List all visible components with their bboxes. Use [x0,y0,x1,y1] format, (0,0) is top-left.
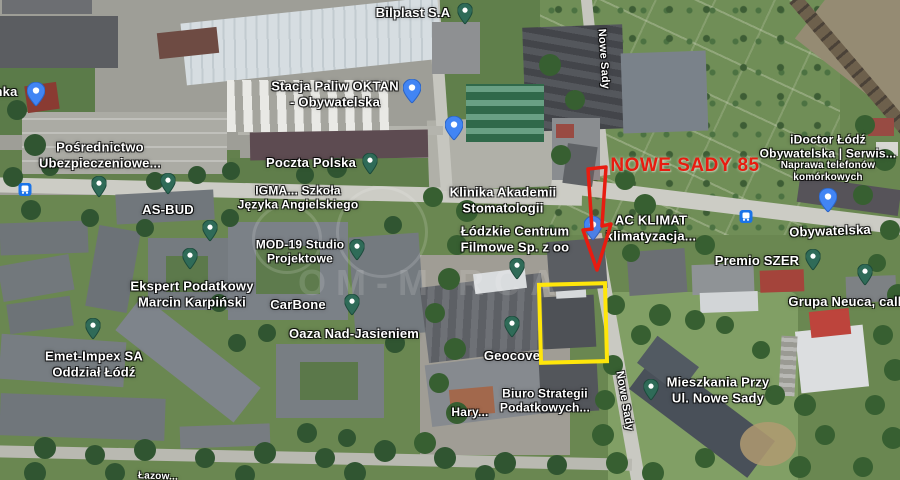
label-oaza[interactable]: Oaza Nad-Jasieniem [289,326,419,342]
building [809,308,851,338]
label-line: Naprawa telefonów [781,160,876,172]
place-icon [648,384,653,389]
label-stacja-paliw-oktan[interactable]: Stacja Paliw OKTAN- Obywatelska [271,78,399,109]
label-line: Ekspert Podatkowy [130,278,253,294]
filmowe-pin[interactable] [510,258,525,284]
place-icon [349,299,354,304]
mail-icon [367,158,372,163]
label-line: IGMA... Szkoła [238,184,359,198]
building [0,16,118,68]
bus-icon [743,213,750,219]
label-line: - Obywatelska [271,94,399,110]
label-as-bud[interactable]: AS-BUD [142,202,194,218]
building [760,269,805,293]
place-icon [96,181,101,186]
label-line: komórkowych [781,172,876,184]
label-line: AC KLIMAT [606,212,696,228]
premio-pin[interactable] [806,249,821,275]
bed-icon [451,121,457,127]
label-line: Stomatologii [450,200,557,216]
label-line: Marcin Karpiński [130,294,253,310]
place-icon [187,253,192,258]
place-icon [207,225,212,230]
label-line: Klinika Akademii [450,184,557,200]
label-line: Ul. Nowe Sady [667,390,770,406]
nka-poi-pin[interactable] [27,82,45,111]
label-ac-klimat[interactable]: AC KLIMATklimatyzacja... [606,212,696,243]
label-klinika[interactable]: Klinika AkademiiStomatologii [450,184,557,215]
label-line: Ubezpieczeniowe... [39,155,161,171]
label-poczta-polska[interactable]: Poczta Polska [266,155,356,171]
factory-icon [462,8,467,13]
place-icon [862,269,867,274]
building [621,51,709,134]
label-line: nka [0,84,18,100]
label-line: Hary... [451,405,488,419]
label-line: klimatyzacja... [606,228,696,244]
geocove-pin[interactable] [505,316,520,342]
annotation-nowe-sady-85: NOWE SADY 85 [610,155,759,177]
label-emet-impex[interactable]: Emet-Impex SAOddział Łódź [45,348,143,379]
satellite-terrain [0,0,900,480]
label-line: Geocove [484,348,540,364]
as-bud-pin[interactable] [161,173,176,199]
label-posrednictwo[interactable]: PośrednictwoUbezpieczeniowe... [39,139,161,170]
poczta-polska-pin[interactable] [363,153,378,179]
label-idoctor-sub[interactable]: Naprawa telefonówkomórkowych [781,160,876,184]
shopping-bag-icon [825,193,831,199]
label-line: Obywatelska [789,222,871,240]
label-geocove[interactable]: Geocove [484,348,540,364]
label-line: AS-BUD [142,202,194,218]
mieszkania-pin[interactable] [644,379,659,405]
label-line: Mieszkania Przy [667,374,770,390]
ekspert-pin[interactable] [183,248,198,274]
building [432,22,480,74]
label-line: Stacja Paliw OKTAN [271,78,399,94]
label-line: Łazow... [138,470,179,480]
label-line: Pośrednictwo [39,139,161,155]
place-icon [90,323,95,328]
building [627,248,688,296]
label-biuro-strategii[interactable]: Biuro StrategiiPodatkowych... [500,387,590,416]
building [556,124,574,138]
highlight-box [537,281,609,365]
label-line: CarBone [270,297,326,313]
label-line: Bilplast S.A [376,5,451,21]
label-obywatelska-street: Obywatelska [789,222,871,240]
label-lazow-partial: Łazow... [138,470,179,480]
mod-19-pin[interactable] [350,239,365,265]
label-line: Emet-Impex SA [45,348,143,364]
building [0,220,89,255]
tree-cluster [0,0,10,10]
hotel-pin[interactable] [445,116,463,145]
label-carbone[interactable]: CarBone [270,297,326,313]
place-icon [514,263,519,268]
label-ekspert-podatkowy[interactable]: Ekspert PodatkowyMarcin Karpiński [130,278,253,309]
place-icon [509,321,514,326]
label-grupa-neuca[interactable]: Grupa Neuca, call [788,294,900,310]
label-line: Oaza Nad-Jasieniem [289,326,419,342]
label-line: Grupa Neuca, call [788,294,900,310]
place-icon [165,178,170,183]
label-line: iDoctor Łódź [760,133,897,147]
label-line: Oddział Łódź [45,364,143,380]
label-line: MOD-19 Studio [256,238,345,252]
label-line: Filmowe Sp. z oo [461,239,570,255]
label-line: Języka Angielskiego [238,198,359,212]
label-line: Projektowe [256,252,345,266]
red-arrow-annotation [578,164,618,276]
bilplast-pin[interactable] [458,3,473,29]
neuca-pin[interactable] [858,264,873,290]
label-idoctor-name[interactable]: iDoctor ŁódźObywatelska | Serwis... [760,133,897,162]
building [700,291,759,313]
label-mod-19[interactable]: MOD-19 StudioProjektowe [256,238,345,267]
label-igma-szkola[interactable]: IGMA... SzkołaJęzyka Angielskiego [238,184,359,213]
fuel-icon [409,84,415,90]
building [180,423,271,448]
bus-stop-obywatelska-pin[interactable] [740,210,753,228]
building [740,422,796,466]
map-canvas[interactable]: OM-M RCA Bilplast S.AStacja Paliw OKTAN-… [0,0,900,480]
carbone-pin[interactable] [345,294,360,320]
place-icon [810,254,815,259]
building [0,393,166,441]
building [300,362,358,400]
emet-impex-pin[interactable] [86,318,101,344]
label-nka-partial[interactable]: nka [0,84,18,100]
place-icon [354,244,359,249]
label-line: Poczta Polska [266,155,356,171]
label-line: Podatkowych... [500,401,590,415]
fuel-station-pin[interactable] [403,79,421,108]
igma-pin[interactable] [203,220,218,246]
label-line: Łódzkie Centrum [461,223,570,239]
road-west-pin[interactable] [92,176,107,202]
building [0,254,75,302]
building [778,336,797,397]
building [6,296,74,335]
label-bilplast[interactable]: Bilplast S.A [376,5,451,21]
label-premio-szer[interactable]: Premio SZER [715,253,800,269]
building-icon [33,87,39,93]
label-line: Premio SZER [715,253,800,269]
shopping-pin[interactable] [819,188,837,217]
label-mieszkania[interactable]: Mieszkania PrzyUl. Nowe Sady [667,374,770,405]
bus-icon [22,186,29,192]
building [466,84,544,142]
label-hary[interactable]: Hary... [451,405,488,419]
bus-stop-west-pin[interactable] [19,183,32,201]
building [2,0,92,14]
label-lodzkie-centrum[interactable]: Łódzkie CentrumFilmowe Sp. z oo [461,223,570,254]
label-line: Biuro Strategii [500,387,590,401]
